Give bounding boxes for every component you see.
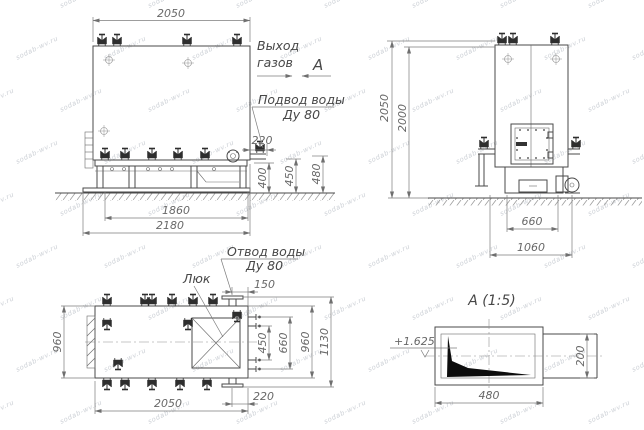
dim-h400: 400 xyxy=(256,168,269,189)
dim-base-outer: 1060 xyxy=(517,241,545,254)
valve-icon xyxy=(103,378,112,390)
side-view: 2050 2000 660 1060 xyxy=(378,34,642,259)
valve-icon xyxy=(98,35,107,47)
label-gas-outlet-1: Выход xyxy=(257,38,299,53)
dim-plan-right-960: 960 xyxy=(299,332,312,353)
dim-front-top: 2050 xyxy=(157,7,185,20)
frame-rail xyxy=(95,160,247,166)
dim-outlet-offset-top: 150 xyxy=(254,278,275,291)
label-water-return-1: Отвод воды xyxy=(227,244,305,259)
valve-icon xyxy=(148,378,157,390)
label-water-supply-1: Подвод воды xyxy=(258,92,345,107)
valve-icon xyxy=(168,295,177,307)
dim-outlet-offset-bottom: 220 xyxy=(253,390,274,403)
detail-a-view: А (1:5) 200 480 +1.625 xyxy=(390,293,605,407)
valve-icon xyxy=(121,378,130,390)
valve-icon xyxy=(551,34,560,46)
label-water-return-2: Ду 80 xyxy=(245,258,283,273)
valve-icon xyxy=(201,149,210,161)
valve-icon xyxy=(184,318,193,330)
dim-plan-right-450: 450 xyxy=(256,333,269,354)
elevation-mark-label: +1.625 xyxy=(394,335,435,348)
label-hatch: Люк xyxy=(182,271,211,286)
valve-icon xyxy=(183,35,192,47)
valve-icon xyxy=(113,35,122,47)
valve-icon xyxy=(509,34,518,46)
boiler-body-side xyxy=(495,45,568,167)
dim-plan-right-660: 660 xyxy=(277,333,290,354)
dim-side-height-inner: 2000 xyxy=(396,104,409,132)
valve-icon xyxy=(148,295,157,307)
hatch-opening xyxy=(192,318,240,368)
lifting-lug-mark xyxy=(502,53,514,65)
door-handle xyxy=(516,142,527,146)
dim-detail-height: 200 xyxy=(574,346,587,367)
dim-detail-width: 480 xyxy=(479,389,500,402)
dim-frame-outer: 2180 xyxy=(156,219,184,232)
valve-icon xyxy=(176,378,185,390)
lifting-lug-mark xyxy=(182,57,194,69)
ladder xyxy=(85,132,93,168)
label-water-supply-2: Ду 80 xyxy=(282,107,320,122)
valve-icon xyxy=(233,35,242,47)
dim-plan-right-1130: 1130 xyxy=(318,328,331,356)
lifting-lug-mark xyxy=(103,54,115,66)
dim-side-height-outer: 2050 xyxy=(378,94,391,122)
label-gas-outlet-2: газов xyxy=(257,55,293,70)
detail-title: А (1:5) xyxy=(467,293,515,309)
valve-icon xyxy=(148,149,157,161)
drawing-sheet: sodab-wv.rusodab-wv.rusodab-wv.rusodab-w… xyxy=(0,0,644,430)
lifting-lug-mark xyxy=(550,53,562,65)
base-plate xyxy=(83,188,250,192)
dim-h450: 450 xyxy=(283,166,296,187)
valve-icon xyxy=(203,378,212,390)
valve-icon xyxy=(114,358,123,370)
valve-icon xyxy=(103,318,112,330)
valve-icon xyxy=(209,295,218,307)
boiler-body-front xyxy=(93,46,250,160)
dim-plan-width: 960 xyxy=(51,332,64,353)
valve-icon xyxy=(103,295,112,307)
plan-view: Люк Отвод воды Ду 80 150 220 2050 xyxy=(51,244,334,414)
valve-icon xyxy=(121,149,130,161)
boiler-drawing: 2050 1860 2180 400 450 480 220 Выход газ… xyxy=(0,0,644,430)
dim-h480: 480 xyxy=(310,164,323,185)
furnace-door xyxy=(511,124,553,164)
lifting-lug-mark xyxy=(98,125,110,137)
valve-icon xyxy=(174,149,183,161)
dim-plan-length: 2050 xyxy=(154,397,182,410)
bottom-flange xyxy=(222,378,243,387)
front-view: 2050 1860 2180 400 450 480 220 Выход газ… xyxy=(55,7,345,236)
water-outlet-flange xyxy=(222,296,243,306)
valve-icon xyxy=(498,34,507,46)
dim-frame-inner: 1860 xyxy=(162,204,190,217)
valve-icon xyxy=(480,138,489,150)
valve-icon xyxy=(572,138,581,150)
fan xyxy=(556,176,580,193)
dim-base-inner: 660 xyxy=(522,215,543,228)
label-view-a: А xyxy=(312,56,323,74)
valve-icon xyxy=(101,149,110,161)
valve-icon xyxy=(189,295,198,307)
